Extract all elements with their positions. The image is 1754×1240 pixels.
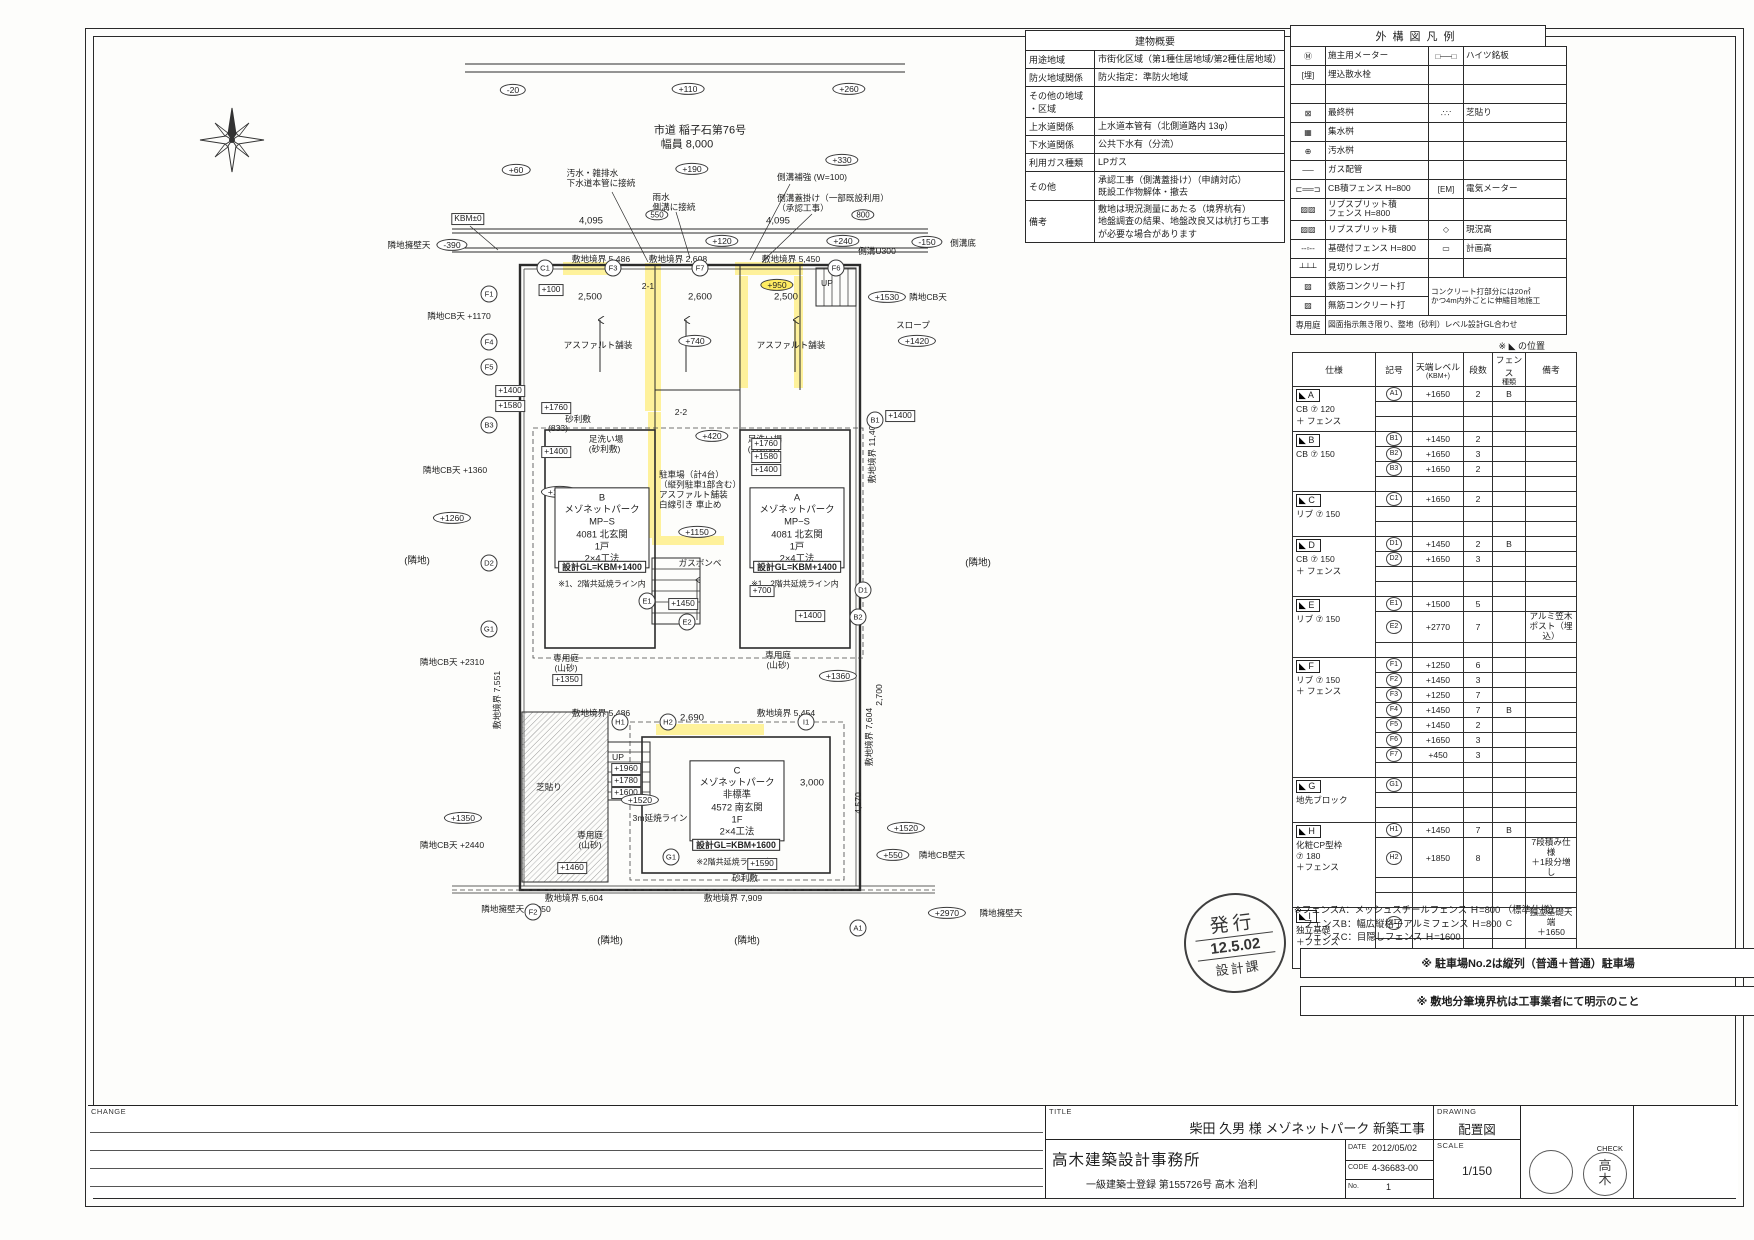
plan-label: 4,095 [766,215,790,226]
spec-symbol-cell: F7 [1376,747,1413,762]
spec-level [1413,878,1464,893]
legend-label: 基礎付フェンス H=800 [1326,239,1429,258]
spec-steps [1464,642,1493,657]
spec-symbol-cell [1376,417,1413,432]
overview-row: 下水道関係公共下水有（分流） [1026,136,1285,154]
spec-remark [1526,642,1577,657]
title-block-end-cell [1633,1106,1738,1198]
spec-level [1413,522,1464,537]
site-plan-sheet: 市道 稲子石第76号幅員 8,000-20+110+260+60+190+330… [0,0,1754,1240]
plan-label: F3 [605,260,622,277]
spec-symbol-cell [1376,477,1413,492]
plan-label: 敷地境界 5,450 [762,254,820,264]
spec-remark [1526,732,1577,747]
spec-remark [1526,687,1577,702]
change-rule [90,1168,1043,1169]
plan-label: F4 [481,334,498,351]
legend-symbol [1429,199,1464,221]
spec-group-spec: 化粧CP型枠 ⑦ 180 ＋フェンス [1296,840,1372,874]
legend-label: 見切りレンガ [1326,258,1429,277]
plan-label: F2 [525,904,542,921]
check-cell: CHECK 高 木 [1520,1106,1633,1198]
plan-label: 専用庭 (山砂) [553,653,579,673]
spec-symbol: E1 [1386,597,1402,611]
spec-steps: 2 [1464,462,1493,477]
plan-label: (833) [548,423,568,433]
spec-symbol: D1 [1386,537,1402,551]
plan-label: +1400 [795,610,825,622]
spec-steps: 5 [1464,597,1493,612]
plan-label: 敷地境界 5,604 [545,893,603,903]
spec-fence-type [1493,417,1526,432]
legend-label [1464,142,1567,161]
parking-note-box: ※ 駐車場No.2は縦列（普通＋普通）駐車場 [1300,948,1754,978]
legend-label: CB積フェンス H=800 [1326,180,1429,199]
plan-label: (隣地) [597,935,623,946]
spec-group-name: ◣ D [1296,539,1321,552]
legend-label [1464,161,1567,180]
spec-symbol-cell: F4 [1376,702,1413,717]
legend-label [1464,85,1567,104]
spec-group-spec: リブ ⑦ 150 [1296,614,1372,625]
spec-fence-type [1493,582,1526,597]
overview-row-label: 用途地域 [1026,51,1095,69]
spec-steps [1464,762,1493,777]
spec-fence-type [1493,552,1526,567]
plan-label: 800 [851,209,874,220]
spec-remark [1526,417,1577,432]
change-rule [90,1150,1043,1151]
plan-label: +60 [502,164,531,176]
legend-symbol: [埋] [1291,66,1326,85]
spec-symbol-cell: B1 [1376,432,1413,447]
legend-symbol: □──□ [1429,47,1464,66]
spec-remark [1526,878,1577,893]
spec-remark [1526,792,1577,807]
spec-steps: 2 [1464,387,1493,402]
plan-label: +2970 [928,907,966,919]
overview-row-label: 備考 [1026,201,1095,242]
legend-row: ▦集水桝 [1291,123,1567,142]
spec-steps [1464,507,1493,522]
legend-symbol: Ⓜ [1291,47,1326,66]
spec-row: ◣ BCB ⑦ 150B1+14502 [1293,432,1577,447]
spec-symbol: F2 [1386,673,1402,687]
corner-triangle-icon: ◣ [1299,826,1306,836]
spec-group-cell: ◣ ACB ⑦ 120 ＋ フェンス [1293,387,1376,432]
scale-cell: SCALE 1/150 [1433,1139,1520,1198]
spec-remark [1526,672,1577,687]
spec-group-spec: CB ⑦ 120 ＋ フェンス [1296,404,1372,426]
architect-license: 一級建築士登録 第155726号 高木 治利 [1086,1176,1258,1191]
spec-fence-type [1493,447,1526,462]
plan-label: 設計GL=KBM+1600 [692,839,780,851]
spec-remark [1526,522,1577,537]
legend-row [1291,85,1567,104]
legend-label: 埋込散水栓 [1326,66,1429,85]
spec-symbol-cell: D1 [1376,537,1413,552]
overview-row: その他の地域 ・区域 [1026,87,1285,118]
spec-symbol: F5 [1386,718,1402,732]
legend-row: ▨▨リブスプリット積◇現況高 [1291,220,1567,239]
spec-symbol: F4 [1386,703,1402,717]
legend-row: ──ガス配管 [1291,161,1567,180]
legend-label [1326,85,1429,104]
plan-label: +1760 [751,438,781,450]
spec-group-cell: ◣ Eリブ ⑦ 150 [1293,597,1376,658]
plan-label: +330 [825,154,858,166]
plan-label: 設計GL=KBM+1400 [753,561,841,573]
spec-fence-type [1493,657,1526,672]
spec-steps: 2 [1464,432,1493,447]
spec-symbol-cell: G1 [1376,777,1413,792]
overview-row-value: 敷地は現況測量にあたる（境界杭有） 地盤調査の結果、地盤改良又は杭打ち工事 が必… [1095,201,1285,242]
plan-label: 側溝補強 (W=100) [777,172,847,182]
plan-label: 芝貼り [536,782,562,792]
spec-level: +1850 [1413,837,1464,878]
plan-label: 側溝蓋掛け（一部既設利用） （承認工事） [777,193,889,213]
spec-symbol-cell [1376,762,1413,777]
spec-row: ◣ H化粧CP型枠 ⑦ 180 ＋フェンスH1+14507B [1293,822,1577,837]
plan-label: 2,700 [874,684,884,706]
plan-label: A1 [850,920,867,937]
spec-remark: アルミ笠木 ポスト（埋込） [1526,612,1577,643]
plan-label: +1780 [611,775,641,787]
spec-fence-type [1493,687,1526,702]
spec-symbol: F1 [1386,658,1402,672]
legend-label [1464,258,1567,277]
spec-symbol-cell: F2 [1376,672,1413,687]
spec-fence-type [1493,762,1526,777]
spec-row: ◣ DCB ⑦ 150 ＋ フェンスD1+14502B [1293,537,1577,552]
spec-fence-type: B [1493,537,1526,552]
spec-header: 備考 [1526,353,1577,387]
plan-label: 敷地境界 7,551 [492,671,502,729]
spec-row: ◣ Cリブ ⑦ 150C1+16502 [1293,492,1577,507]
legend-label [1464,199,1567,221]
plan-label: +420 [695,430,728,442]
spec-header: 仕様 [1293,353,1376,387]
spec-steps: 2 [1464,537,1493,552]
plan-label: 4,095 [579,215,603,226]
date-label: DATE [1348,1144,1366,1151]
plan-label: +1760 [541,402,571,414]
spec-symbol-cell [1376,642,1413,657]
spec-fence-type [1493,642,1526,657]
plan-label: C1 [537,260,554,277]
legend-symbol [1429,123,1464,142]
plan-label: 2,600 [688,291,712,302]
spec-level: +1250 [1413,657,1464,672]
plan-label: 隣地CB天 [909,292,947,302]
plan-label: +1580 [751,451,781,463]
plan-label: 砂利敷 [565,414,591,424]
spec-remark [1526,597,1577,612]
spec-level: +1650 [1413,387,1464,402]
overview-row-label: 下水道関係 [1026,136,1095,154]
plan-label: 敷地境界 7,604 [864,708,874,766]
plan-label: +1350 [552,674,582,686]
spec-level [1413,762,1464,777]
code-label: CODE [1348,1164,1368,1171]
plan-label: 隣地CB壁天 [919,850,965,860]
plan-label: +1960 [611,763,641,775]
legend-symbol: ⊏══⊐ [1291,180,1326,199]
plan-label: E2 [679,614,696,631]
spec-symbol-cell: D2 [1376,552,1413,567]
legend-symbol: ⊕ [1291,142,1326,161]
meta-cell: DATE 2012/05/02 CODE 4-36683-00 No. 1 [1345,1139,1433,1198]
company-cell: 高木建築設計事務所 一級建築士登録 第155726号 高木 治利 [1045,1139,1345,1198]
spec-remark: 7段積み仕様 ＋1段分増し [1526,837,1577,878]
change-rule [90,1186,1043,1187]
legend-row: [埋]埋込散水栓 [1291,66,1567,85]
spec-level [1413,777,1464,792]
plan-label: 砂利敷 [732,873,758,883]
plan-label: (隣地) [404,555,430,566]
plan-label: 側溝底 [950,238,976,248]
plan-label: +1400 [885,410,915,422]
spec-level [1413,642,1464,657]
plan-label: D2 [481,555,498,572]
spec-symbol-cell: F1 [1376,657,1413,672]
project-title-cell: TITLE 柴田 久男 様 メゾネットパーク 新築工事 [1045,1106,1433,1139]
plan-label: +1350 [444,812,482,824]
spec-fence-type [1493,732,1526,747]
plan-label: 2,690 [680,712,704,723]
spec-group-spec: CB ⑦ 150 [1296,449,1372,460]
legend-label: ハイツ銘板 [1464,47,1567,66]
plan-label: +700 [750,585,775,597]
plan-label: 敷地境界 5,486 [572,254,630,264]
spec-level: +1650 [1413,492,1464,507]
spec-level: +1450 [1413,822,1464,837]
spec-steps: 7 [1464,612,1493,643]
spec-group-name: ◣ A [1296,389,1320,402]
spec-fence-type [1493,432,1526,447]
spec-steps: 7 [1464,702,1493,717]
spec-remark [1526,477,1577,492]
legend-label: リブスプリット積 [1326,220,1429,239]
spec-symbol-cell [1376,792,1413,807]
spec-steps: 3 [1464,447,1493,462]
spec-fence-type [1493,522,1526,537]
overview-title: 建物概要 [1025,30,1285,50]
spec-row: ◣ Fリブ ⑦ 150 ＋ フェンスF1+12506 [1293,657,1577,672]
plan-label: 2,500 [578,291,602,302]
spec-symbol-cell: C1 [1376,492,1413,507]
plan-label: +740 [678,335,711,347]
spec-remark [1526,747,1577,762]
plan-label: 隣地CB天 +2440 [420,840,484,850]
legend-symbol [1429,258,1464,277]
spec-symbol-cell [1376,567,1413,582]
plan-label: +110 [672,83,705,95]
spec-group-cell: ◣ H化粧CP型枠 ⑦ 180 ＋フェンス [1293,822,1376,908]
spec-steps: 3 [1464,552,1493,567]
spec-symbol: H1 [1386,823,1402,837]
overview-row: 上水道関係上水道本管有（北側道路内 13φ） [1026,118,1285,136]
spec-steps: 7 [1464,687,1493,702]
overview-row-value: 公共下水有（分流） [1095,136,1285,154]
plan-label: (隣地) [734,935,760,946]
spec-level: +1450 [1413,717,1464,732]
spec-remark [1526,447,1577,462]
overview-row: その他承認工事（側溝蓋掛け）（申請対応） 既設工作物解体・撤去 [1026,172,1285,201]
plan-label: B1 [867,412,884,429]
fence-type-notes: ※フェンスA：メッシュスチールフェンス Ｈ=800 （標準仕様） フェンスB：幅… [1294,903,1559,944]
fence-note-b: フェンスB：幅広縦格子アルミフェンス Ｈ=800 [1294,918,1502,929]
spec-symbol-cell: F6 [1376,732,1413,747]
spec-group-spec: リブ ⑦ 150 [1296,509,1372,520]
number-label: No. [1348,1183,1359,1190]
legend-bottom-row: 専用庭図面指示無き限り、整地（砂利）レベル設計GL合わせ [1291,315,1567,334]
corner-triangle-icon: ◣ [1299,390,1306,400]
spec-remark [1526,717,1577,732]
legend-label: 電気メーター [1464,180,1567,199]
plan-label: B3 [481,417,498,434]
plan-label: 3,000 [800,777,824,788]
spec-symbol-cell: F5 [1376,717,1413,732]
spec-fence-type [1493,612,1526,643]
plan-label: +1450 [668,598,698,610]
plan-label: アスファルト舗装 [757,340,826,350]
spec-symbol: B3 [1386,462,1402,476]
spec-level: +1650 [1413,447,1464,462]
wall-spec-table: 仕様記号天端レベル(KBM+)段数フェンス種類備考 ◣ ACB ⑦ 120 ＋ … [1292,352,1546,969]
spec-level: +1450 [1413,537,1464,552]
legend-symbol [1429,66,1464,85]
spec-symbol-cell: F3 [1376,687,1413,702]
plan-label: +1530 [868,291,906,303]
spec-remark [1526,822,1577,837]
spec-symbol-cell [1376,582,1413,597]
legend-symbol: ── [1291,161,1326,180]
overview-row: 利用ガス種類LPガス [1026,154,1285,172]
legend-symbol: ∴∵ [1429,104,1464,123]
spec-steps [1464,777,1493,792]
check-seal-text: 高 木 [1584,1159,1626,1188]
spec-level [1413,507,1464,522]
boundary-note-box: ※ 敷地分筆境界杭は工事業者にて明示のこと [1300,986,1754,1016]
plan-label: +950 [760,279,793,291]
change-rule [90,1132,1043,1133]
spec-group-name: ◣ C [1296,494,1321,507]
legend-symbol: ┴┴┴ [1291,258,1326,277]
legend-label: 現況高 [1464,220,1567,239]
spec-fence-type [1493,567,1526,582]
spec-fence-type: B [1493,822,1526,837]
title-block: CHANGE TITLE 柴田 久男 様 メゾネットパーク 新築工事 DRAWI… [88,1105,1738,1198]
spec-row: ◣ G地先ブロックG1 [1293,777,1577,792]
spec-group-cell: ◣ G地先ブロック [1293,777,1376,822]
plan-label: スロープ [896,320,930,330]
plan-label: F5 [481,359,498,376]
plan-label: +260 [832,83,865,95]
legend-symbol: ▨ [1291,296,1326,315]
plan-label: 隣地擁壁天 [388,240,431,250]
spec-symbol: A1 [1386,387,1402,401]
spec-steps: 6 [1464,657,1493,672]
plan-label: UP [612,752,624,762]
corner-triangle-icon: ◣ [1299,600,1306,610]
legend-label: 計画高 [1464,239,1567,258]
plan-label: G1 [481,621,498,638]
spec-remark [1526,507,1577,522]
plan-label: H2 [660,714,677,731]
overview-row: 防火地域関係防火指定：準防火地域 [1026,69,1285,87]
overview-row: 備考敷地は現況測量にあたる（境界杭有） 地盤調査の結果、地盤改良又は杭打ち工事 … [1026,201,1285,242]
spec-level: +2770 [1413,612,1464,643]
plan-label: I1 [798,714,815,731]
corner-triangle-icon: ◣ [1299,781,1306,791]
plan-label: 4,570 [853,792,863,814]
spec-level: +1650 [1413,462,1464,477]
spec-group-name: ◣ H [1296,825,1321,838]
plan-label: アスファルト舗装 [564,340,633,350]
change-log-section: CHANGE [88,1106,1045,1198]
spec-header: 天端レベル(KBM+) [1413,353,1464,387]
plan-label: 専用庭 (山砂) [765,650,791,670]
spec-symbol: B2 [1386,447,1402,461]
spec-fence-type [1493,672,1526,687]
plan-label: +1400 [495,385,525,397]
spec-symbol: D2 [1386,552,1402,566]
spec-steps: 3 [1464,732,1493,747]
code-value: 4-36683-00 [1372,1163,1418,1173]
legend-symbol [1429,142,1464,161]
plan-label: -20 [500,84,526,96]
spec-symbol: F7 [1386,748,1402,762]
spec-group-name: ◣ B [1296,434,1320,447]
spec-level: +1450 [1413,702,1464,717]
spec-remark [1526,552,1577,567]
spec-fence-type [1493,717,1526,732]
spec-position-note: ※ ◣ の位置 [1400,339,1545,352]
legend-row: ⊕汚水桝 [1291,142,1567,161]
drawing-name-cell: DRAWING 配置図 [1433,1106,1520,1139]
spec-fence-type [1493,477,1526,492]
plan-label: A メゾネットパーク MP−S 4081 北玄関 1戸 2×4工法 [749,487,844,568]
spec-group-cell: ◣ BCB ⑦ 150 [1293,432,1376,492]
plan-label: -390 [436,239,467,251]
legend-symbol [1291,85,1326,104]
legend-symbol: ▨▨ [1291,199,1326,221]
spec-level: +1450 [1413,432,1464,447]
scale-label: SCALE [1437,1141,1464,1150]
spec-symbol-cell: E2 [1376,612,1413,643]
spec-group-cell: ◣ DCB ⑦ 150 ＋ フェンス [1293,537,1376,597]
legend-label [1464,66,1567,85]
spec-remark [1526,582,1577,597]
spec-group-spec: CB ⑦ 150 ＋ フェンス [1296,554,1372,576]
spec-remark [1526,657,1577,672]
spec-symbol: F3 [1386,688,1402,702]
plan-label: +1520 [621,794,659,806]
spec-steps [1464,807,1493,822]
corner-triangle-icon: ◣ [1299,495,1306,505]
plan-label: -150 [911,236,942,248]
spec-remark [1526,462,1577,477]
legend-label: 集水桝 [1326,123,1429,142]
plan-label: E1 [639,593,656,610]
plan-label: 足洗い場 (砂利敷) [589,434,623,454]
spec-remark [1526,702,1577,717]
spec-symbol-cell: E1 [1376,597,1413,612]
legend-label: 最終桝 [1326,104,1429,123]
spec-fence-type [1493,747,1526,762]
plan-label: +240 [826,235,859,247]
